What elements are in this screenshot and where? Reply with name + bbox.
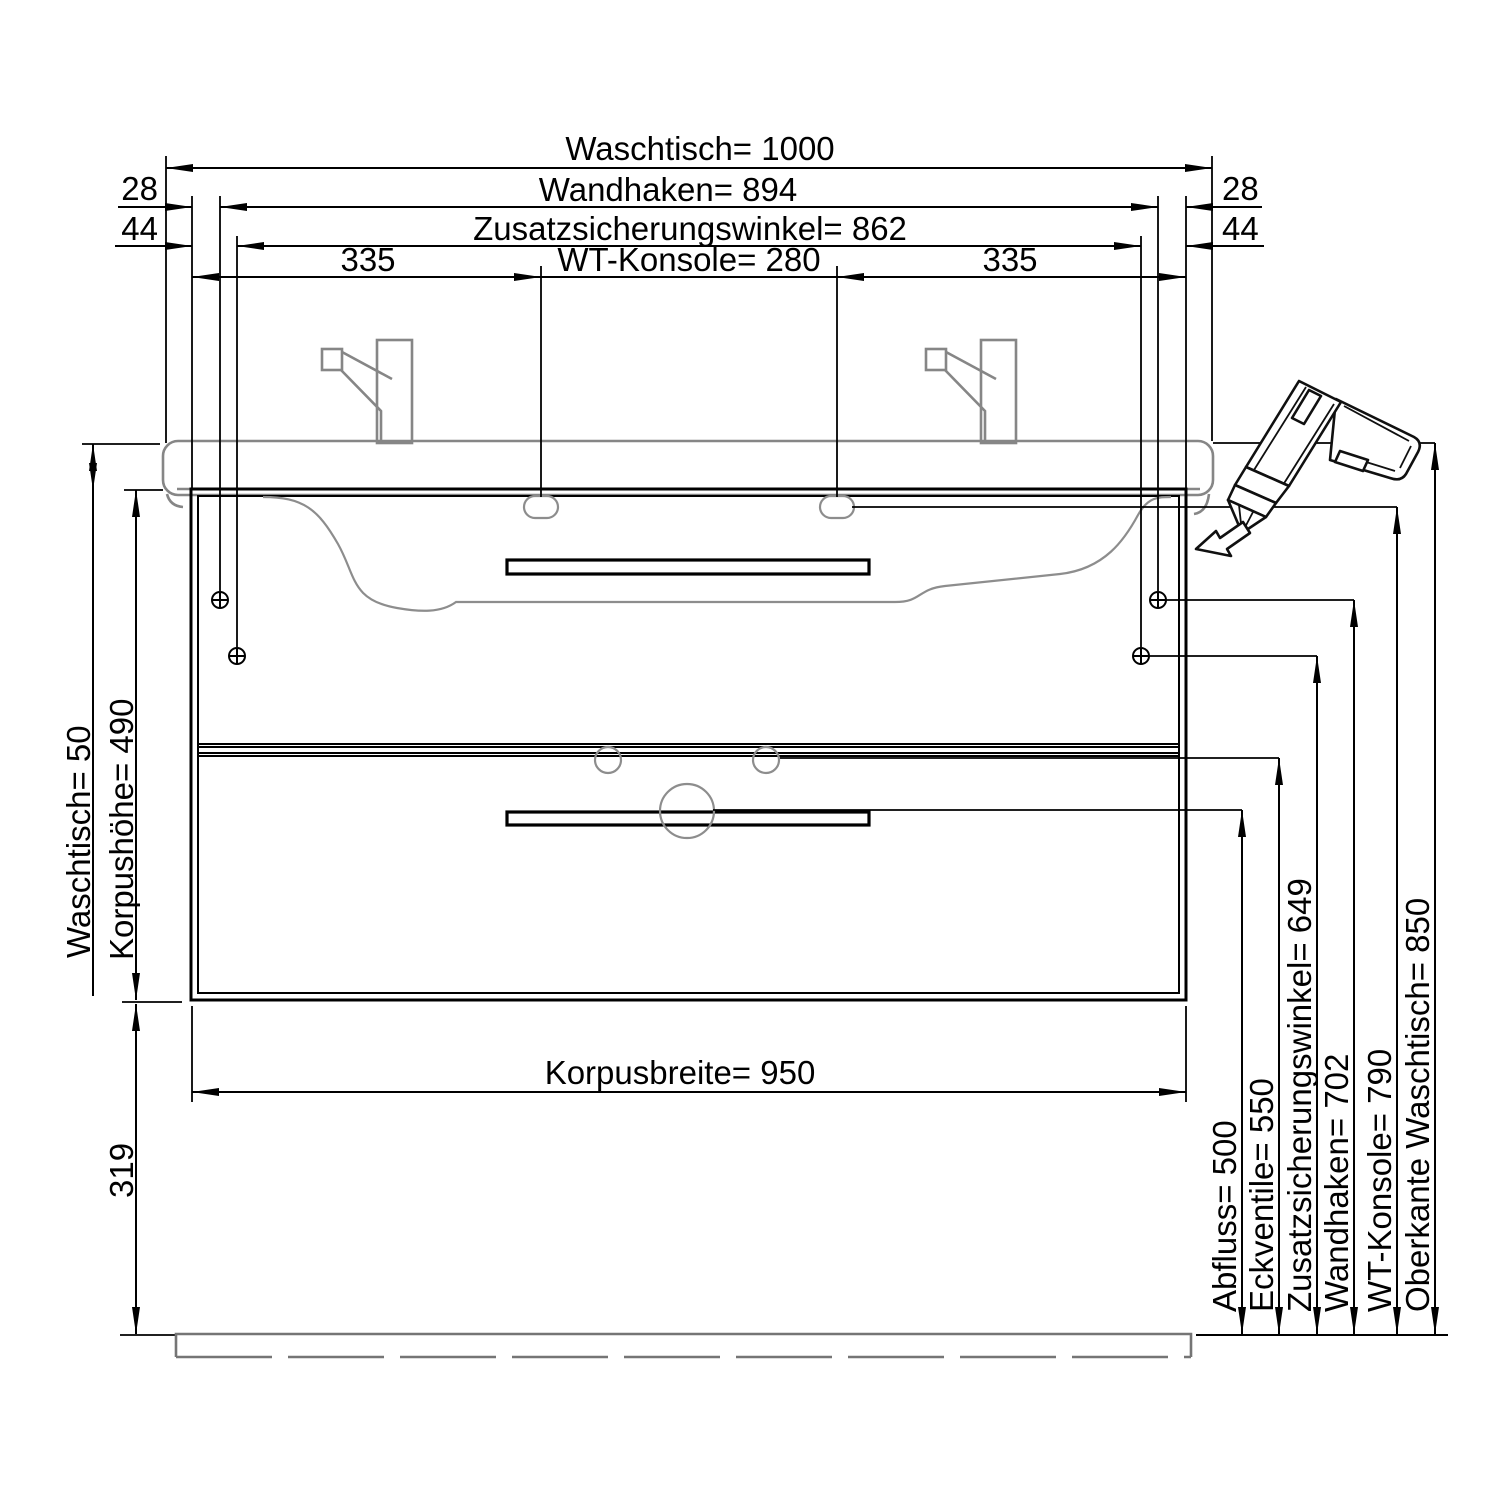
washbasin-outline [163, 441, 1213, 495]
screw-crosshair-icon [1150, 592, 1166, 608]
dim-label: Oberkante Waschtisch= 850 [1399, 898, 1436, 1312]
dim-label: Wandhaken= 702 [1318, 1054, 1355, 1312]
dim-label: WT-Konsole= 790 [1361, 1049, 1398, 1312]
angle-valve-left [595, 747, 621, 773]
faucet-lever-top [946, 352, 996, 379]
dim-sockel-319: 319 [103, 1004, 176, 1335]
angle-valve-right [753, 747, 779, 773]
faucet-left [322, 340, 412, 443]
dim-label: 44 [1222, 210, 1259, 247]
tool-barrel [1246, 381, 1341, 486]
dim-label: 44 [121, 210, 158, 247]
konsole-slot-left [524, 496, 558, 518]
dim-label: Abfluss= 500 [1206, 1120, 1243, 1312]
dim-label: Waschtisch= 50 [60, 725, 97, 958]
washbasin [163, 441, 1213, 514]
dim-label: 28 [121, 170, 158, 207]
dim-eckventile: Eckventile= 550 [780, 758, 1280, 1334]
technical-drawing-page: Waschtisch= 1000 28 Wandhaken= 894 28 44… [0, 0, 1500, 1500]
dim-label: Korpushöhe= 490 [103, 699, 140, 960]
konsole-slot-right [820, 496, 854, 518]
dim-label: Eckventile= 550 [1243, 1078, 1280, 1312]
faucet-spout-edge [341, 370, 381, 443]
dim-label: Korpusbreite= 950 [545, 1054, 816, 1091]
floor-strip [176, 1334, 1191, 1357]
faucet-right [926, 340, 1016, 443]
dim-korpusbreite: Korpusbreite= 950 [192, 1006, 1186, 1102]
drawer-divider [198, 744, 1179, 756]
dim-label: 335 [340, 241, 395, 278]
screw-crosshair-icon [1133, 648, 1149, 664]
faucet-lever-end [322, 349, 342, 370]
dim-label: Waschtisch= 1000 [565, 130, 834, 167]
vanity-dimension-drawing: Waschtisch= 1000 28 Wandhaken= 894 28 44… [0, 0, 1500, 1500]
faucet-spout-edge [945, 370, 985, 443]
dim-label: 335 [982, 241, 1037, 278]
drawer-handle-slot-bottom [507, 812, 869, 825]
dim-label: Wandhaken= 894 [539, 171, 797, 208]
insertion-direction-arrow-icon [1196, 522, 1250, 556]
dim-label: Zusatzsicherungswinkel= 649 [1281, 878, 1318, 1312]
washbasin-right-lip [1194, 494, 1209, 514]
dim-label: 319 [103, 1143, 140, 1198]
screw-crosshair-icon [212, 592, 228, 608]
dim-label: WT-Konsole= 280 [557, 241, 820, 278]
drawer-handle-slot-top [507, 560, 869, 574]
basin-underside-recess [263, 497, 1171, 611]
cordless-screwdriver-icon [1228, 381, 1420, 533]
screw-crosshair-icon [229, 648, 245, 664]
faucet-lever-top [342, 352, 392, 379]
dim-label: 28 [1222, 170, 1259, 207]
vanity-cabinet [191, 489, 1186, 1000]
faucet-lever-end [926, 349, 946, 370]
dim-korpushoehe: Korpushöhe= 490 [103, 490, 182, 1002]
